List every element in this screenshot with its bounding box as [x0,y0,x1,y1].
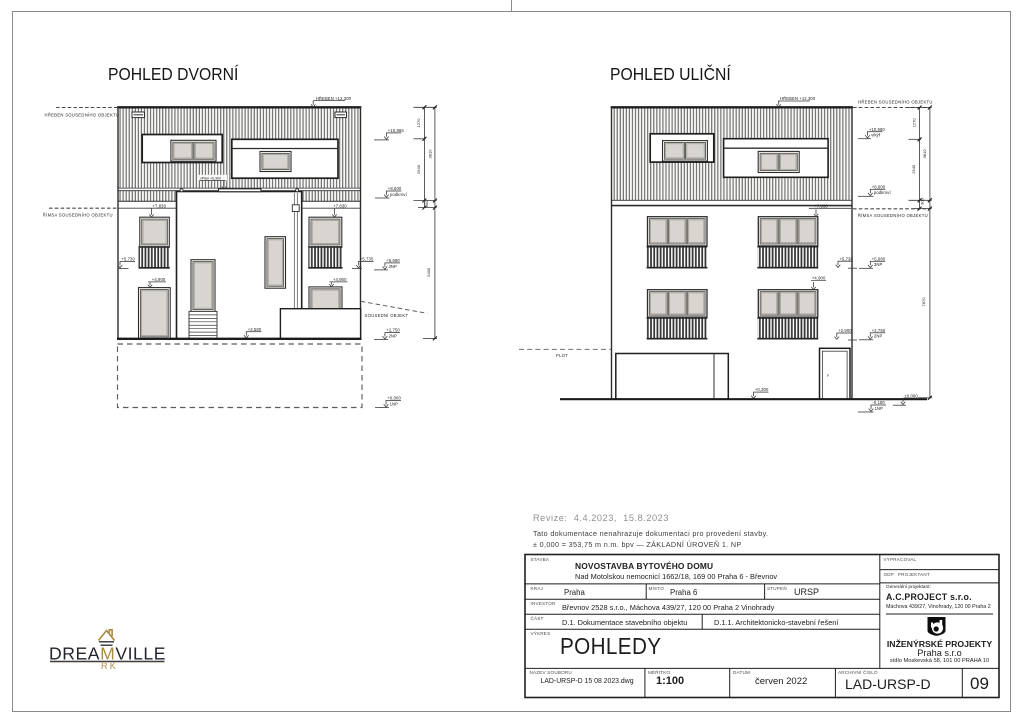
svg-text:RK: RK [101,661,118,671]
